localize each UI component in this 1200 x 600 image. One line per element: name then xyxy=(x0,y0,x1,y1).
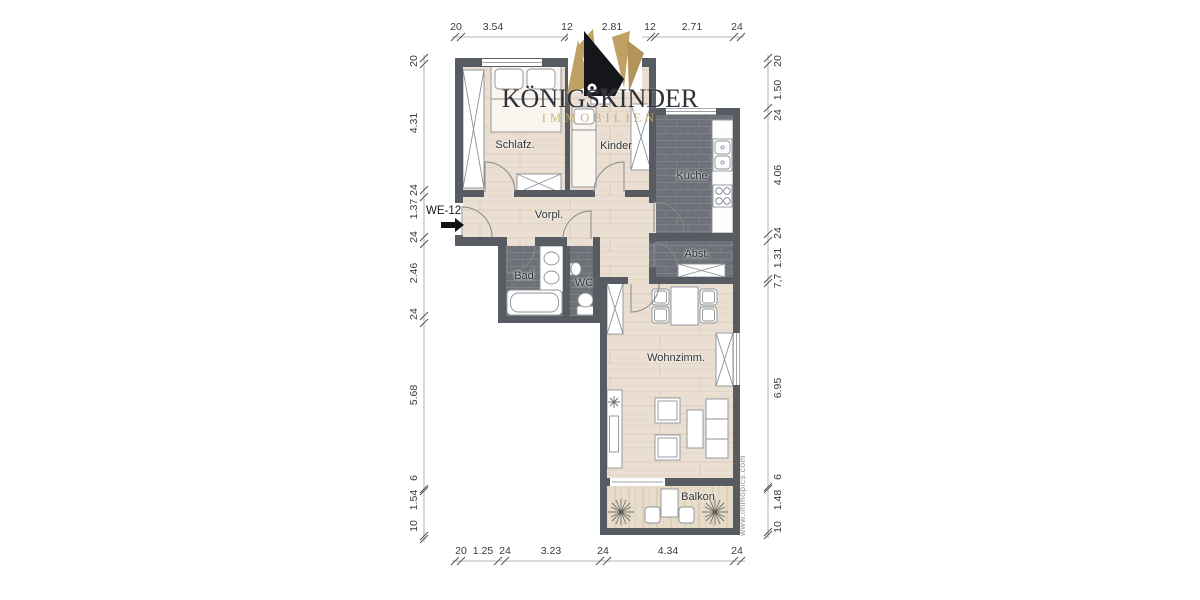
dim-bottom-2: 24 xyxy=(499,546,511,557)
wc-sink xyxy=(570,263,581,276)
sideboard xyxy=(607,390,622,468)
dim-left-9: 1.54 xyxy=(409,490,420,510)
dim-right-9: 1.48 xyxy=(773,490,784,510)
dim-right-8: 6 xyxy=(773,474,784,480)
balcony-table xyxy=(661,489,678,517)
dim-left-2: 24 xyxy=(409,184,420,196)
room-label-wc: WC xyxy=(575,277,593,289)
kitchen-counter xyxy=(712,120,733,233)
wardrobe-schlafzimmer xyxy=(463,70,484,188)
dim-right-5: 1.31 xyxy=(773,248,784,268)
dim-bottom-5: 4.34 xyxy=(658,546,678,557)
dim-left-1: 4.31 xyxy=(409,113,420,133)
window-wohnzimmer xyxy=(734,333,740,385)
balcony-chair-left xyxy=(645,507,660,523)
dim-right-2: 24 xyxy=(773,109,784,121)
armchair-1 xyxy=(655,398,680,423)
dim-left-4: 24 xyxy=(409,231,420,243)
sofa xyxy=(706,399,728,458)
dim-right-3: 4.06 xyxy=(773,165,784,185)
dim-bottom-0: 20 xyxy=(455,546,467,557)
wardrobe-wohnzimmer xyxy=(716,333,733,386)
dim-top-2: 12 xyxy=(561,22,573,33)
room-label-bad: Bad xyxy=(514,270,534,282)
dim-right-1: 1.50 xyxy=(773,80,784,100)
dim-bottom-4: 24 xyxy=(597,546,609,557)
armchair-2 xyxy=(655,435,680,460)
room-label-schlafzimmer: Schlafz. xyxy=(495,139,534,151)
dim-right-4: 24 xyxy=(773,227,784,239)
dim-left-6: 24 xyxy=(409,308,420,320)
dim-top-6: 24 xyxy=(731,22,743,33)
dim-bottom-6: 24 xyxy=(731,546,743,557)
dim-top-3: 2.81 xyxy=(602,22,622,33)
room-label-vorplatz: Vorpl. xyxy=(535,209,563,221)
wardrobe-entry xyxy=(607,283,623,334)
dim-left-5: 2.46 xyxy=(409,263,420,283)
dim-bottom-1: 1.25 xyxy=(473,546,493,557)
room-label-abstellraum: Abst. xyxy=(684,248,709,260)
floor-corridor-leg xyxy=(600,237,649,284)
dim-right-6: 7,7 xyxy=(773,274,784,289)
balcony-door xyxy=(612,479,663,486)
dim-top-0: 20 xyxy=(450,22,462,33)
dim-left-3: 1.37 xyxy=(409,199,420,219)
dim-right-0: 20 xyxy=(773,55,784,67)
bathroom-vanity xyxy=(540,246,563,292)
entrance-arrow xyxy=(441,218,464,232)
dining-table xyxy=(671,287,698,325)
dim-left-7: 5.68 xyxy=(409,385,420,405)
balcony-chair-right xyxy=(679,507,694,523)
dim-right-10: 10 xyxy=(773,521,784,533)
storage-shelf xyxy=(678,264,725,277)
dim-top-4: 12 xyxy=(644,22,656,33)
room-label-wohnzimmer: Wohnzimm. xyxy=(647,352,705,364)
window-schlafzimmer xyxy=(482,59,542,66)
dim-left-0: 20 xyxy=(409,55,420,67)
room-label-kinderzimmer: Kinder xyxy=(600,140,632,152)
floorplan-canvas: Schlafz. Kinder Küche Vorpl. Bad WC Abst… xyxy=(0,0,1200,600)
dim-top-5: 2.71 xyxy=(682,22,702,33)
room-label-balkon: Balkon xyxy=(681,491,715,503)
dim-top-1: 3.54 xyxy=(483,22,503,33)
watermark-text: www.immopics.com xyxy=(737,455,747,536)
unit-label: WE-12 xyxy=(426,205,461,217)
room-label-kueche: Küche xyxy=(676,170,707,182)
coffee-table xyxy=(687,410,703,448)
bathtub xyxy=(507,290,562,315)
wc-toilet xyxy=(577,293,594,315)
dim-left-10: 10 xyxy=(409,520,420,532)
brand-tagline: IMMOBILIEN xyxy=(542,111,658,126)
dim-bottom-3: 3.23 xyxy=(541,546,561,557)
brand-name: KÖNIGSKINDER xyxy=(502,84,698,114)
dim-left-8: 6 xyxy=(409,475,420,481)
dim-right-7: 6.95 xyxy=(773,378,784,398)
